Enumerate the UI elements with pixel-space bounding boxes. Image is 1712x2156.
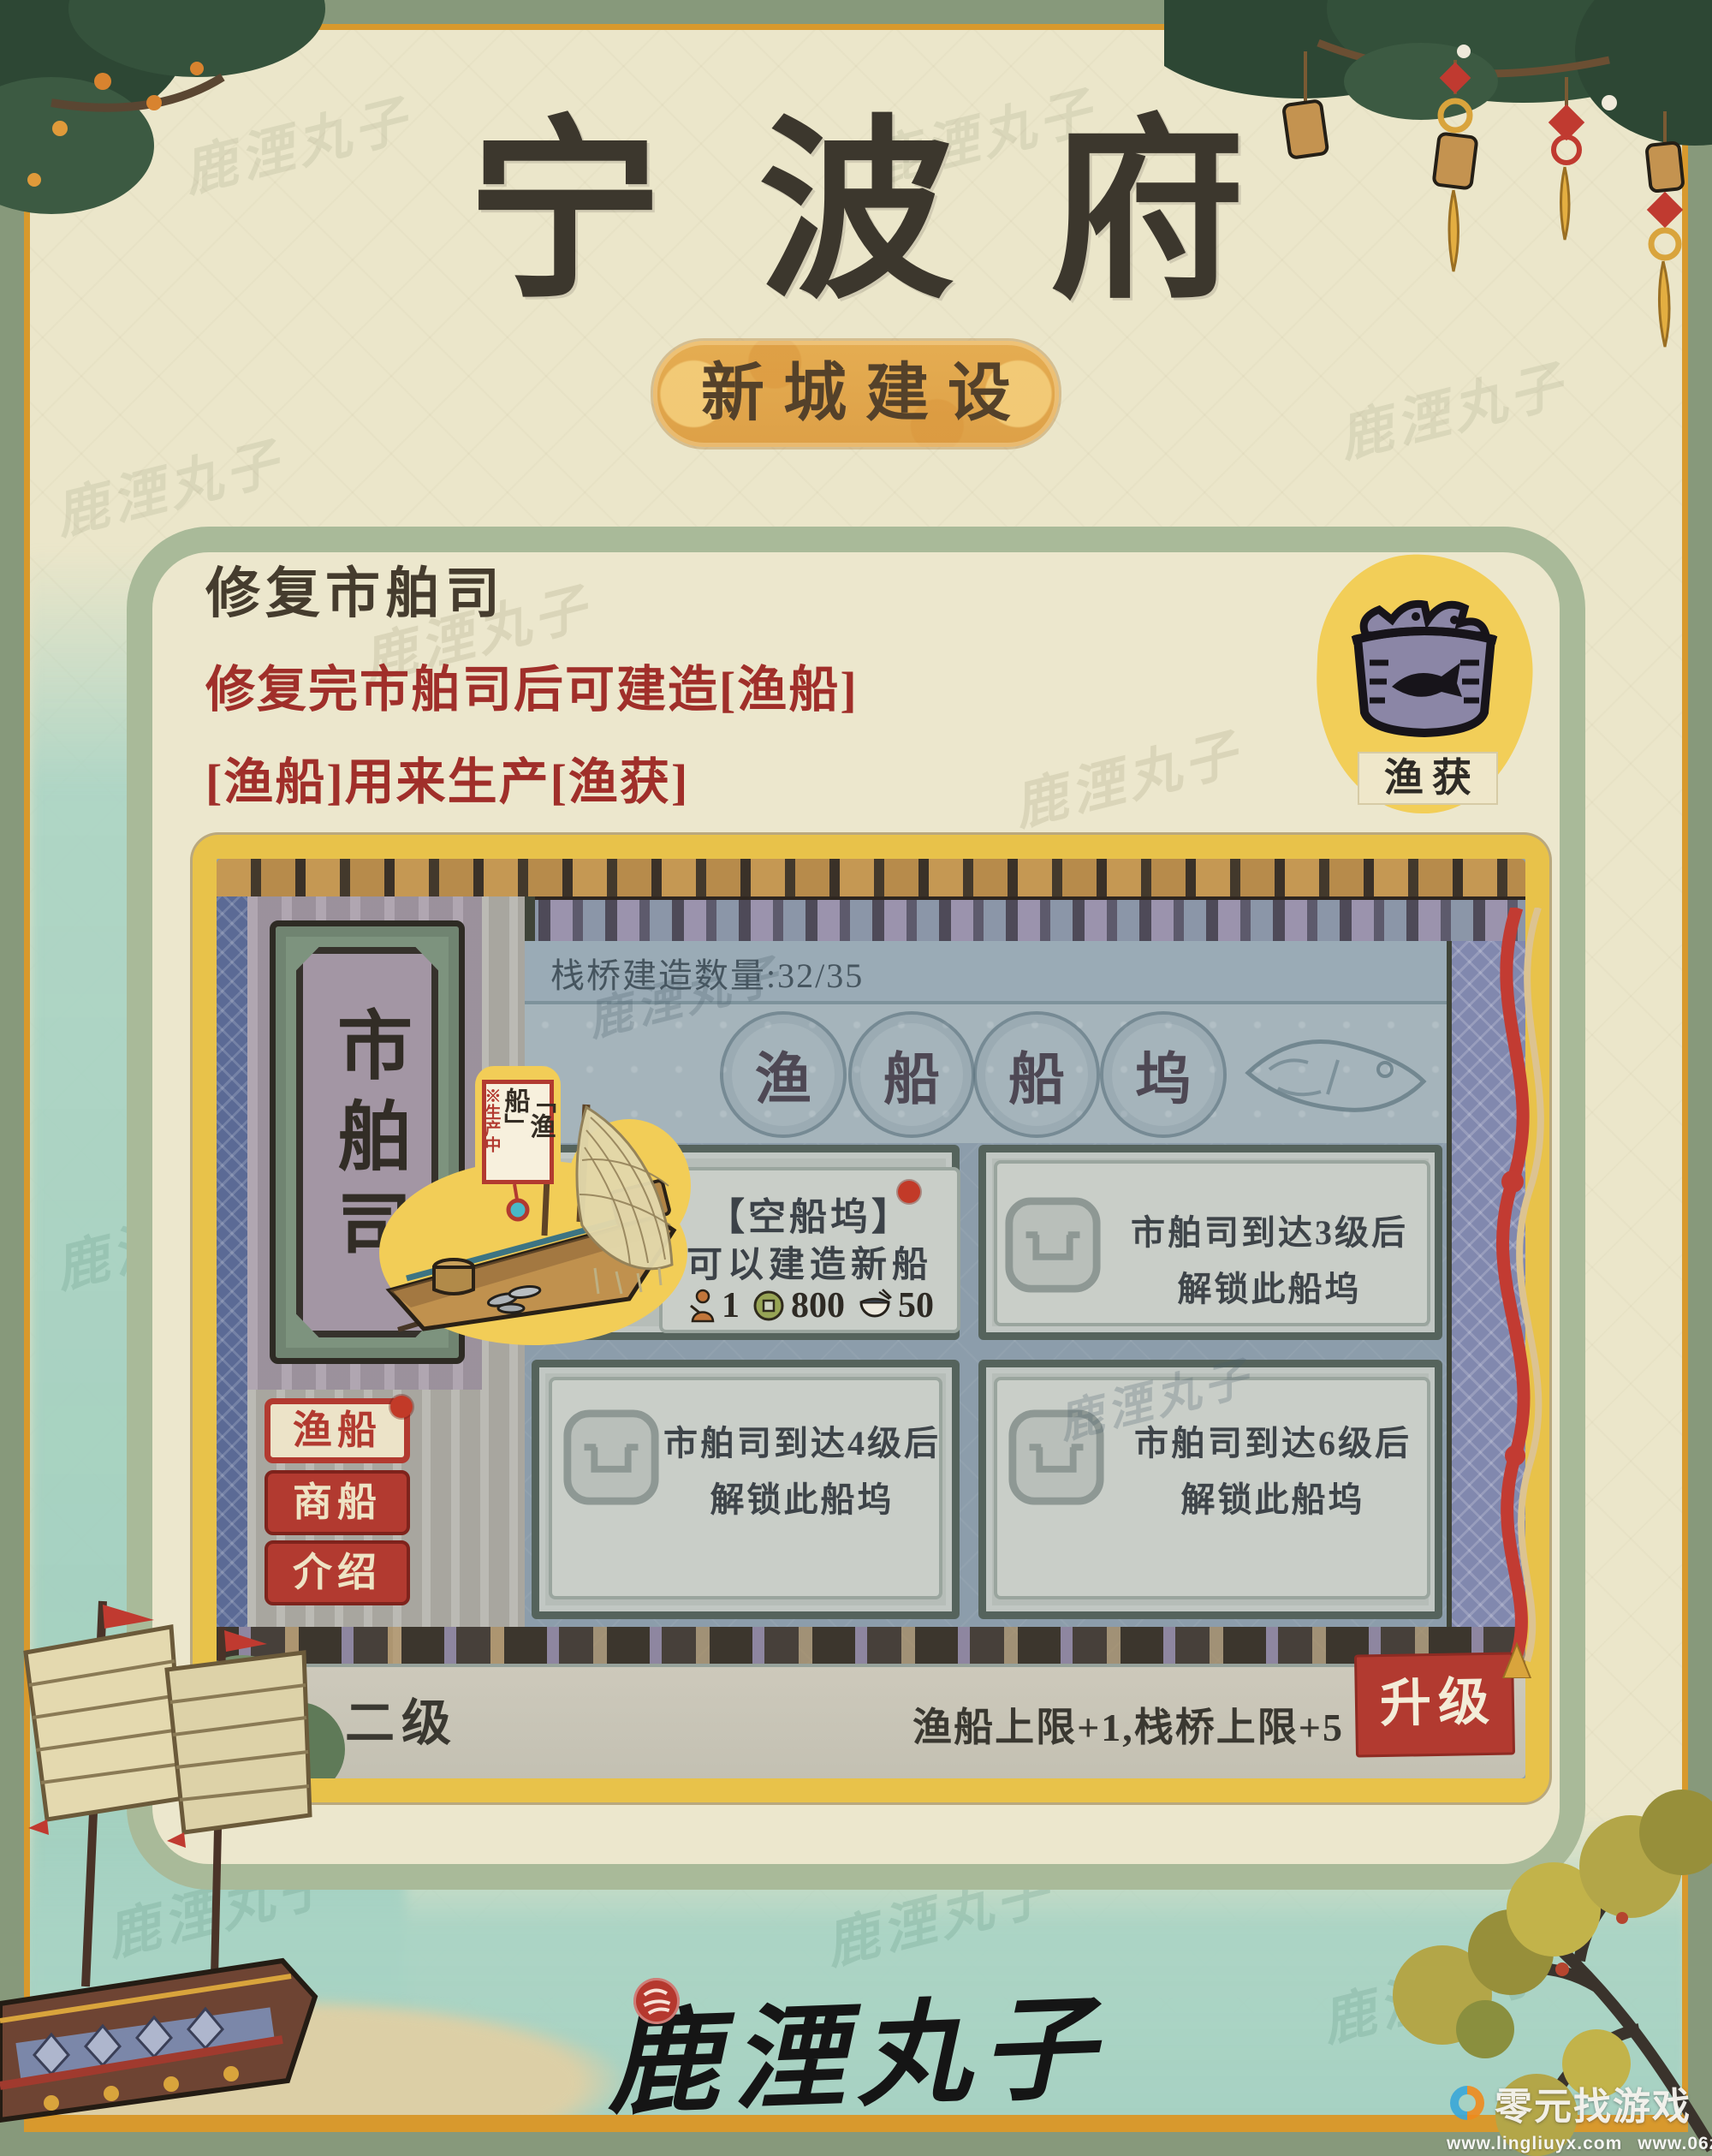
site-logo-icon <box>1447 2082 1488 2123</box>
guide-page: 鹿湮丸子 鹿湮丸子 鹿湮丸子 鹿湮丸子 鹿湮丸子 鹿湮丸子 鹿湮丸子 鹿湮丸子 … <box>0 0 1712 2156</box>
tab-introduction[interactable]: 介绍 <box>265 1540 410 1605</box>
upgrade-perks: 渔船上限+1,栈桥上限+5 <box>912 1696 1344 1753</box>
page-title: 宁波府 <box>0 53 1712 336</box>
locked-dock-line2: 解锁此船坞 <box>662 1472 942 1522</box>
coin-icon <box>752 1289 786 1323</box>
food-cost-value: 50 <box>898 1285 934 1326</box>
dock-title-char: 船 <box>848 1011 975 1138</box>
dock-title-char-label: 渔 <box>755 1033 811 1116</box>
coin-cost: 800 <box>752 1285 845 1326</box>
reward-label: 渔获 <box>1358 752 1498 805</box>
dock-title-char: 坞 <box>1100 1011 1227 1138</box>
locked-dock-line1: 市舶司到达6级后 <box>1110 1415 1436 1465</box>
locked-dock-line1: 市舶司到达4级后 <box>662 1415 942 1465</box>
fish-basket-icon <box>1332 567 1517 747</box>
site-url-2: www.06zyx.com <box>1638 2134 1712 2154</box>
subtitle-badge-label: 新城建设 <box>653 341 1059 447</box>
site-urls: www.lingliuyx.com www.06zyx.com <box>1447 2134 1712 2154</box>
site-watermark-row: 零元找游戏 <box>1447 2076 1691 2130</box>
dock-title-char-label: 船 <box>1008 1033 1065 1116</box>
dock-title-char: 渔 <box>720 1011 847 1138</box>
food-cost: 50 <box>857 1285 934 1326</box>
leaf-decoration <box>217 1612 354 1778</box>
game-ui: 市舶司 栈桥建造数量:32/35 渔 船 船 坞 鹿湮丸子 鹿湮丸子 <box>217 859 1525 1778</box>
notification-dot <box>898 1181 920 1203</box>
section-heading: 修复市舶司 <box>205 550 505 628</box>
rice-bowl-icon <box>857 1289 893 1323</box>
locked-dock-line1: 市舶司到达3级后 <box>1107 1205 1432 1254</box>
section-line-2: [渔船]用来生产[渔获] <box>205 741 689 813</box>
building-level: 二级 <box>345 1683 458 1754</box>
tab-label: 介绍 <box>293 1551 382 1594</box>
tab-label: 商船 <box>293 1480 382 1524</box>
boat-name-label: 「渔船」 <box>502 1087 553 1176</box>
dock-slot-icon <box>1006 1407 1107 1508</box>
subtitle-badge: 新城建设 <box>653 341 1059 447</box>
coin-cost-value: 800 <box>791 1285 845 1326</box>
build-cost-row: 1 800 50 <box>659 1285 960 1326</box>
upgrade-button[interactable]: 升级 <box>1354 1652 1515 1757</box>
bottom-plank-row <box>217 1627 1525 1664</box>
dock-title-char-label: 坞 <box>1135 1033 1192 1116</box>
section-line-1: 修复完市舶司后可建造[渔船] <box>205 649 859 721</box>
right-diamond-wall <box>1447 941 1525 1665</box>
locked-dock-line2: 解锁此船坞 <box>1110 1472 1436 1522</box>
site-url-1: www.lingliuyx.com <box>1447 2134 1622 2154</box>
dock-slot-icon <box>1002 1194 1103 1295</box>
dock-slot-icon <box>561 1407 662 1508</box>
faint-watermark: 鹿湮丸子 <box>1329 341 1574 472</box>
dock-title-char-label: 船 <box>883 1033 940 1116</box>
tab-fishing-boat[interactable]: 渔船 <box>265 1398 410 1463</box>
site-watermark: 零元找游戏 www.lingliuyx.com www.06zyx.com <box>1447 2076 1703 2154</box>
boat-status-label: ※生产中 <box>484 1087 500 1176</box>
wood-beam <box>217 859 1525 900</box>
notification-dot <box>390 1396 413 1418</box>
site-brand: 零元找游戏 <box>1495 2076 1691 2130</box>
tab-label: 渔船 <box>293 1409 382 1452</box>
left-diamond-wall <box>217 896 247 1665</box>
fish-relief-icon <box>1235 1013 1432 1133</box>
dock-title-char: 船 <box>973 1011 1100 1138</box>
seal-glyph <box>631 1975 683 2028</box>
tab-merchant-ship[interactable]: 商船 <box>265 1470 410 1535</box>
artist-seal <box>631 1975 683 2028</box>
game-screenshot: 市舶司 栈桥建造数量:32/35 渔 船 船 坞 鹿湮丸子 鹿湮丸子 <box>193 835 1549 1802</box>
worker-cost-value: 1 <box>722 1285 740 1326</box>
fishing-boat-sticker[interactable]: ※生产中 「渔船」 <box>372 1057 691 1349</box>
bridge-counter: 栈桥建造数量:32/35 <box>550 948 864 998</box>
locked-dock-line2: 解锁此船坞 <box>1107 1261 1432 1311</box>
boat-name-tag: ※生产中 「渔船」 <box>482 1080 554 1184</box>
worker-cost: 1 <box>686 1285 740 1326</box>
empty-dock-desc: 可以建造新船 <box>659 1236 960 1288</box>
